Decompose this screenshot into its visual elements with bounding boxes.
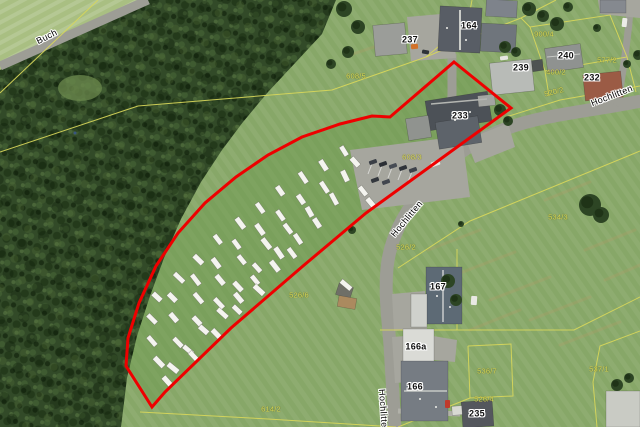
building-235 [461, 400, 494, 427]
survey-marker [74, 132, 77, 135]
orthophoto-scene [0, 0, 640, 427]
forest-clearing [58, 75, 102, 101]
building-232 [583, 71, 624, 101]
roof-window [449, 306, 451, 308]
shed-235 [452, 406, 463, 416]
aerial-map-viewport[interactable]: BuchHochlittenHochlittenHochlitten164237… [0, 0, 640, 427]
roof-window [419, 398, 421, 400]
vehicle [411, 44, 418, 50]
building-167-annex [411, 294, 427, 327]
roof-window [469, 111, 471, 113]
roof-window [436, 295, 438, 297]
shed-240 [531, 59, 543, 71]
roof-window [446, 27, 448, 29]
building-233-west-annex [405, 115, 431, 140]
building-237 [373, 23, 408, 57]
roof-window [465, 39, 467, 41]
vehicle [622, 18, 628, 27]
building-240 [545, 44, 584, 73]
roof-window [454, 119, 456, 121]
vehicle [471, 296, 478, 305]
vehicle [445, 400, 450, 408]
building-239 [489, 59, 534, 95]
asphalt-area [433, 336, 457, 362]
garage-239 [477, 94, 495, 107]
building-164-north-barn [486, 0, 518, 18]
building-se-corner [606, 391, 640, 427]
roof-window [435, 406, 437, 408]
building-ne-corner [600, 0, 626, 13]
building-166a [403, 329, 434, 362]
building-164-east-wing [480, 23, 516, 53]
